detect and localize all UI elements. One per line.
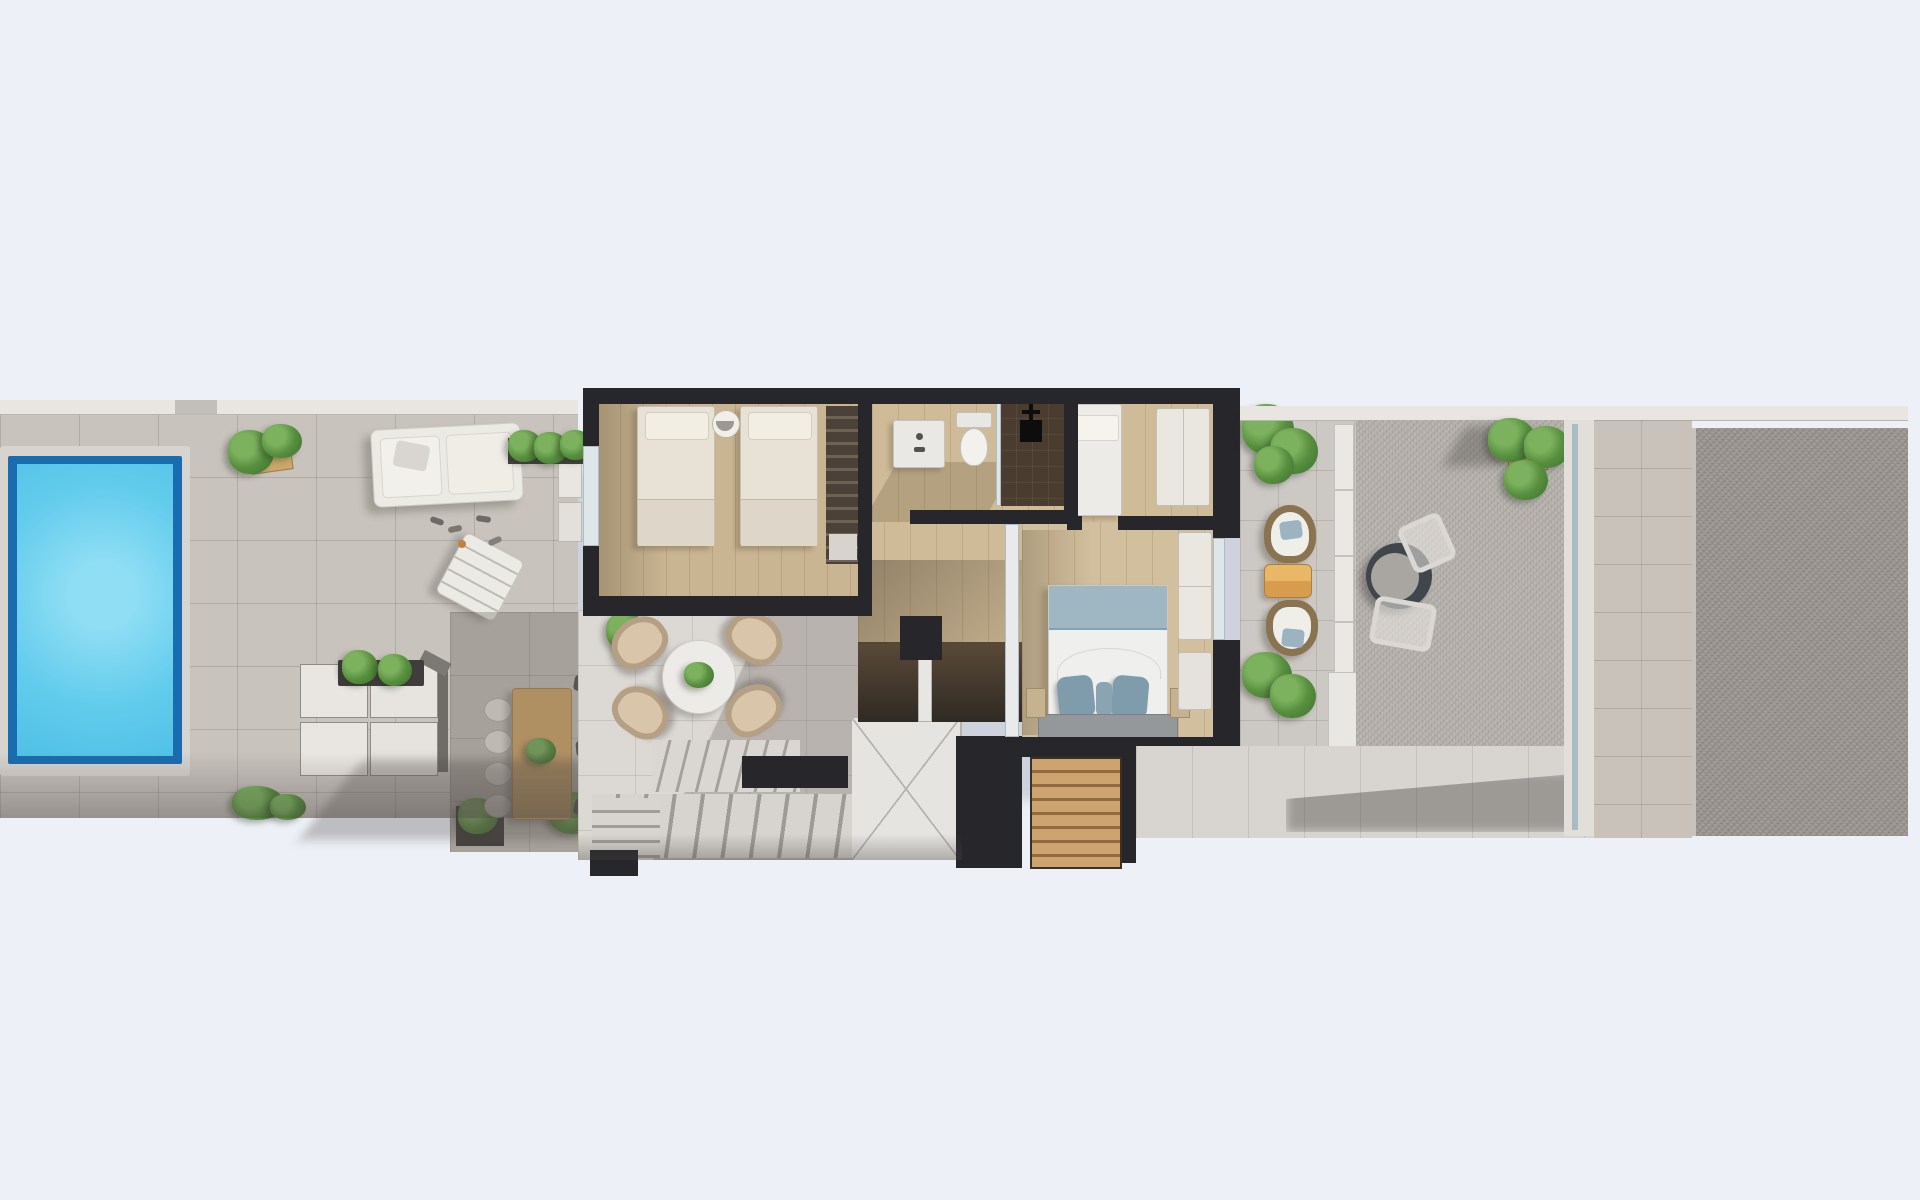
shower-head-icon (1020, 420, 1042, 442)
bath-smallroom-divider-wall (1064, 402, 1078, 522)
balcony-sliding-door (1213, 538, 1225, 640)
stairhead-wall (900, 616, 942, 660)
bed-pillow-small (1096, 682, 1112, 716)
twin-bedroom-south-wall (583, 596, 872, 616)
building-north-wall (583, 388, 1240, 404)
master-desk (1178, 652, 1212, 710)
stairwell-east-wall (956, 736, 1022, 868)
small-bedroom-south-wall-a (1067, 516, 1082, 530)
balcony-side-table (1264, 564, 1312, 598)
floor-plan-render (0, 0, 1920, 1200)
headboard-bench (1038, 714, 1178, 738)
wooden-steps (1030, 757, 1122, 869)
swimming-pool (8, 456, 182, 764)
pool-water (17, 464, 173, 756)
vanity-sink (893, 420, 945, 468)
master-wardrobe (1178, 532, 1212, 640)
plant-icon (378, 654, 412, 686)
walk-in-shower (1000, 402, 1064, 506)
plant-icon (1504, 460, 1548, 500)
sun-daybed (370, 422, 524, 508)
bed-pillow (1056, 674, 1096, 720)
plant-icon (1270, 674, 1316, 718)
plant-icon (1254, 446, 1294, 484)
flip-flops (428, 514, 518, 554)
small-bedroom-wardrobe (1156, 408, 1210, 506)
glass-partition (1005, 524, 1019, 737)
building-west-wall-upper (583, 388, 599, 446)
bed-duvet (1049, 586, 1167, 630)
small-bedroom-south-wall-b (1118, 516, 1213, 530)
west-entry-door (583, 446, 599, 546)
single-bed (637, 406, 715, 546)
north-boundary-wall-west (0, 400, 578, 415)
single-bed (740, 406, 818, 546)
wooden-steps-side-wall (1122, 757, 1136, 863)
gate-segment (175, 400, 217, 414)
bathroom-south-wall (910, 510, 1067, 524)
building-east-wall-upper (1213, 388, 1240, 538)
twin-bath-divider-wall (858, 402, 872, 602)
stone-path (1594, 420, 1692, 838)
planter-box (228, 428, 306, 486)
bed-pillow (1110, 675, 1150, 720)
nightstand (1026, 688, 1046, 718)
wardrobe-with-clothes (826, 406, 860, 564)
hedge-planter (508, 430, 592, 470)
stair-wall-stub (742, 756, 848, 788)
toilet (956, 412, 992, 470)
glass-walkway (1564, 420, 1594, 836)
lounge-bottom-shadow (578, 834, 962, 860)
cocoon-chair (1264, 505, 1316, 563)
entrance-step (558, 502, 582, 542)
round-side-table (712, 410, 740, 438)
plant-icon (684, 662, 714, 688)
gravel-bed (1692, 428, 1908, 836)
plant-icon (262, 424, 302, 458)
planter-bar (338, 650, 424, 692)
balcony-plant-bottom (1240, 648, 1320, 728)
lounge-set (600, 608, 800, 744)
plant-icon (342, 650, 378, 684)
